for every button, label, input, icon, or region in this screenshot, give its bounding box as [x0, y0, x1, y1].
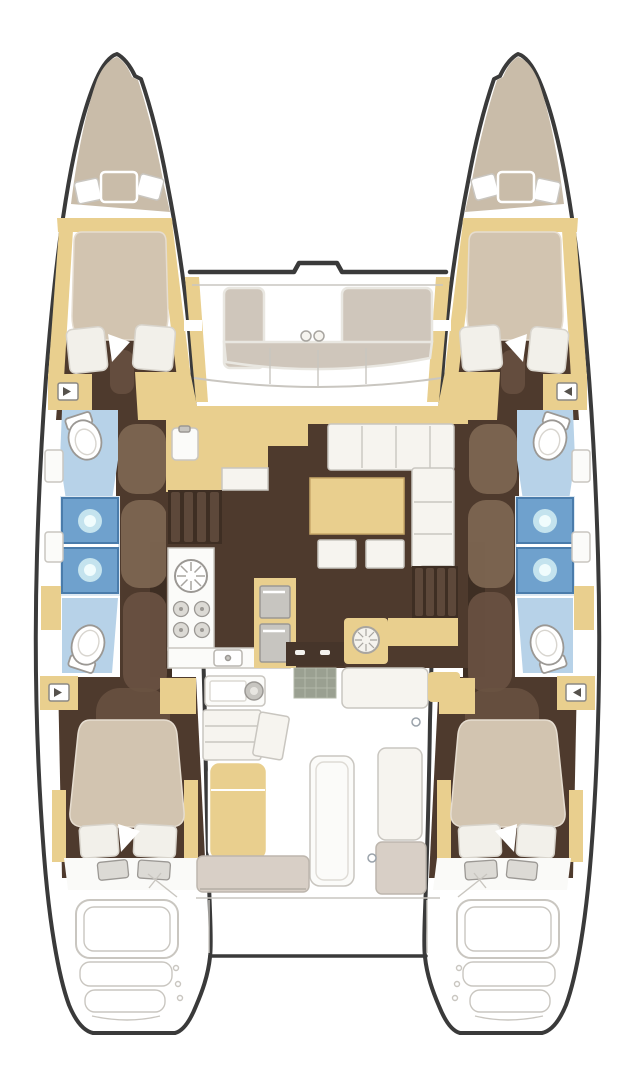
galley-worktop-white [222, 468, 268, 490]
saloon [166, 406, 468, 698]
sliding-door[interactable] [286, 642, 344, 666]
cleat [368, 854, 376, 862]
galley-counter-low [166, 468, 222, 492]
aft-cockpit-bench [197, 856, 309, 892]
deck-fitting [301, 331, 311, 341]
door-handle[interactable] [320, 650, 330, 655]
deck-fitting [314, 331, 324, 341]
foredeck-seat-right [342, 288, 432, 346]
transom-deck-lines [196, 898, 440, 953]
forward-crossbeam [190, 263, 446, 272]
dinette [310, 424, 454, 590]
catamaran-deck-plan [0, 0, 635, 1080]
ottoman[interactable] [366, 540, 404, 568]
helm-seat-step [428, 672, 460, 702]
sofa-back [328, 424, 454, 470]
cleat [412, 718, 420, 726]
floor-plan-canvas [0, 0, 635, 1080]
foredeck-seat-front [224, 342, 432, 369]
wet-bar-top [210, 681, 246, 701]
galley-top-sink [172, 428, 198, 460]
saloon-table [310, 478, 404, 534]
nav-sideboard [388, 618, 458, 646]
door-handle[interactable] [295, 650, 305, 655]
sofa-side [412, 468, 454, 568]
cockpit-bench-stbd [378, 748, 422, 840]
galley-counter-step [268, 424, 308, 446]
faucet [179, 426, 190, 432]
cockpit-module-stbd [376, 842, 426, 894]
foredeck-lounge [192, 285, 443, 388]
cockpit [196, 668, 460, 953]
saloon-front-sideboard [166, 406, 468, 424]
fridge-drawer[interactable] [260, 624, 290, 662]
cockpit-sunpad [209, 762, 267, 860]
doormat [294, 668, 336, 698]
faucet [226, 656, 231, 661]
ottoman[interactable] [318, 540, 356, 568]
aft-facing-seat [342, 668, 428, 708]
